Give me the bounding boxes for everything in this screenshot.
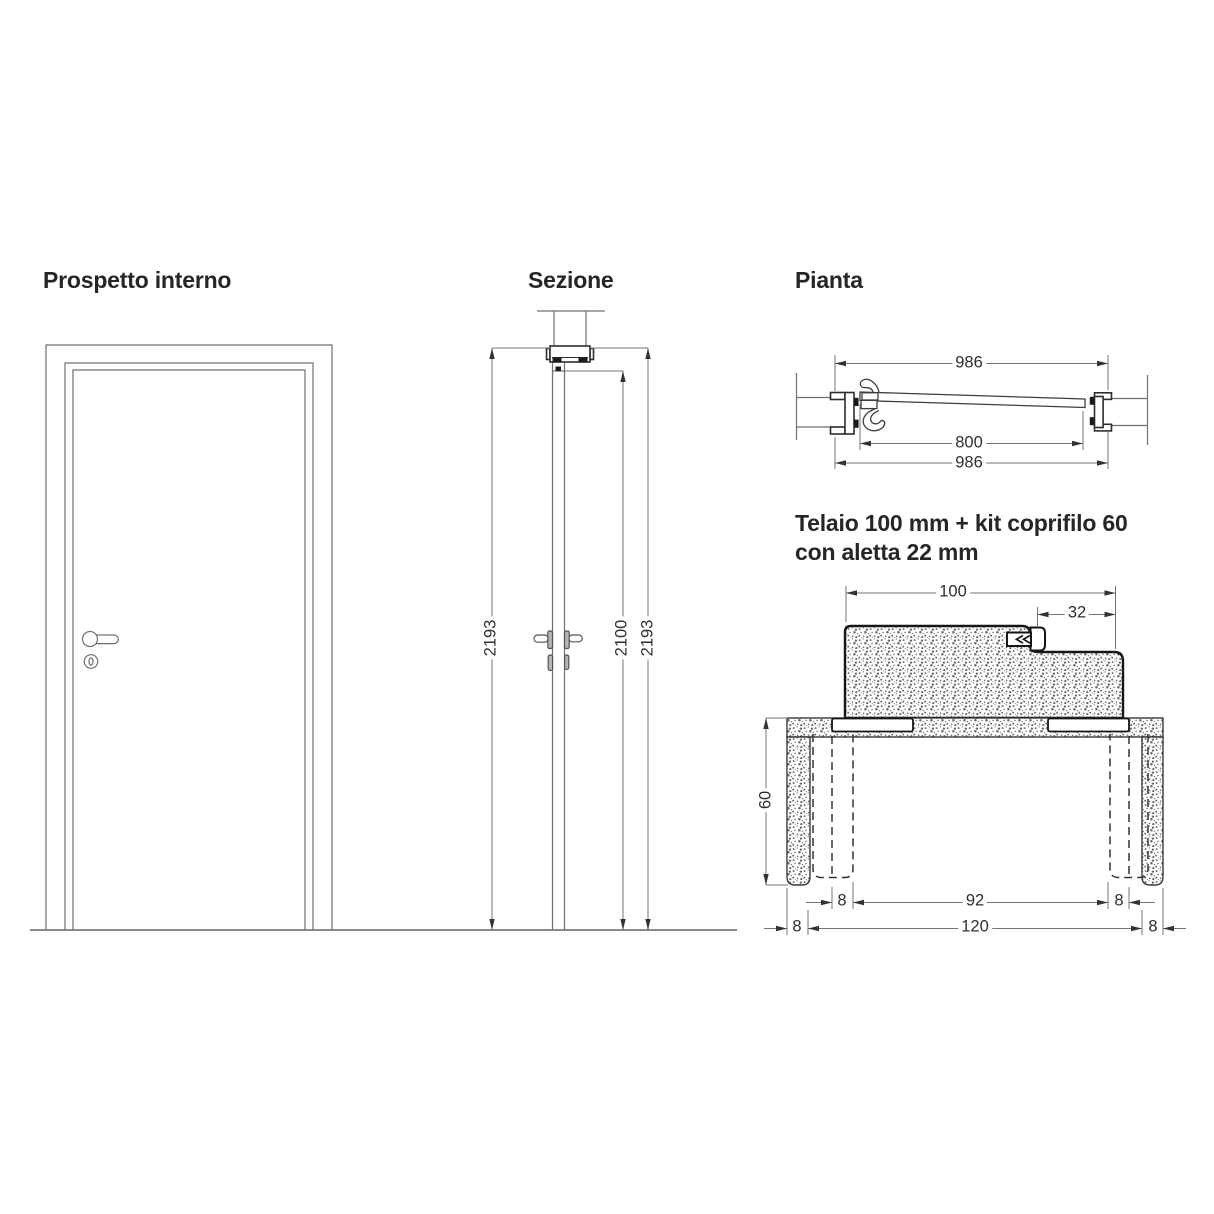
dim-detail-wall-depth: 60 bbox=[757, 788, 774, 812]
dim-plan-top: 986 bbox=[952, 354, 986, 371]
dim-detail-row2-right: 8 bbox=[1145, 918, 1160, 935]
elevation-frame-outer bbox=[46, 345, 332, 930]
hidden-frame-legs bbox=[813, 734, 1148, 878]
dim-detail-coprifilo-step: 32 bbox=[1065, 604, 1089, 621]
wall-leg-right bbox=[1142, 737, 1163, 885]
section-drawing bbox=[534, 311, 605, 930]
technical-drawing-page: Prospetto interno Sezione Pianta Telaio … bbox=[0, 0, 1214, 1214]
door-handle-icon bbox=[83, 632, 119, 669]
dim-section-overall-right: 2193 bbox=[639, 617, 656, 660]
dim-plan-bottom: 986 bbox=[952, 454, 986, 471]
elevation-title: Prospetto interno bbox=[43, 267, 231, 295]
detail-title-line2: con aletta 22 mm bbox=[795, 538, 1155, 567]
detail-title: Telaio 100 mm + kit coprifilo 60 con ale… bbox=[795, 509, 1155, 567]
aletta-fin bbox=[1031, 628, 1046, 651]
aletta-clip bbox=[1007, 633, 1031, 647]
section-handle-lock bbox=[534, 631, 582, 671]
plan-door-leaf bbox=[860, 392, 1085, 409]
dim-section-overall-left: 2193 bbox=[482, 617, 499, 660]
frame-block bbox=[845, 626, 1123, 718]
plan-title: Pianta bbox=[795, 267, 863, 295]
dim-detail-row1-center: 92 bbox=[963, 892, 987, 909]
dim-detail-row1-left: 8 bbox=[834, 892, 849, 909]
dim-section-opening: 2100 bbox=[613, 617, 630, 660]
dim-detail-row1-right: 8 bbox=[1111, 892, 1126, 909]
elevation-frame-inner bbox=[65, 363, 313, 930]
wall-leg-left bbox=[787, 737, 810, 885]
section-title: Sezione bbox=[528, 267, 614, 295]
coprifilo-strip-right bbox=[1048, 719, 1129, 732]
detail-drawing bbox=[787, 626, 1163, 885]
dim-detail-frame-depth: 100 bbox=[936, 583, 970, 600]
elevation-drawing bbox=[46, 345, 332, 930]
drawing-svg bbox=[0, 0, 1214, 1214]
dim-detail-row2-center: 120 bbox=[958, 918, 992, 935]
dim-detail-row2-left: 8 bbox=[789, 918, 804, 935]
coprifilo-strip-left bbox=[832, 719, 913, 732]
dim-plan-passage: 800 bbox=[952, 434, 986, 451]
detail-title-line1: Telaio 100 mm + kit coprifilo 60 bbox=[795, 509, 1155, 538]
elevation-door-leaf bbox=[73, 370, 305, 930]
